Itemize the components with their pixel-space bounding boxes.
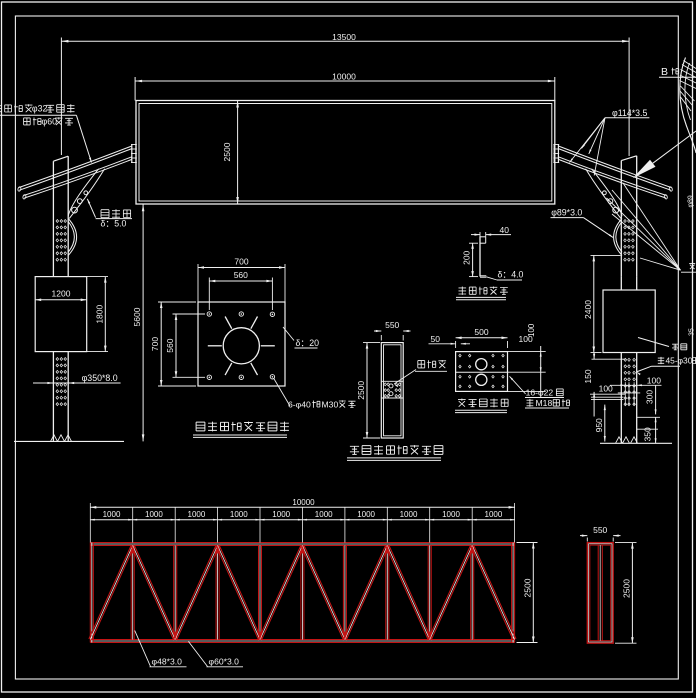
svg-text:δ：20: δ：20: [296, 338, 320, 348]
svg-text:1000: 1000: [103, 510, 121, 519]
svg-text:45-φ30: 45-φ30: [666, 356, 693, 366]
svg-text:φ114*3.5: φ114*3.5: [612, 108, 647, 118]
svg-text:1200: 1200: [52, 289, 71, 299]
svg-text:2500: 2500: [621, 579, 631, 598]
svg-text:350: 350: [643, 427, 653, 441]
svg-text:φ60*3.0: φ60*3.0: [209, 657, 240, 667]
svg-text:35: 35: [689, 328, 696, 336]
svg-text:10000: 10000: [332, 72, 356, 82]
svg-text:φ350*8.0: φ350*8.0: [82, 373, 118, 383]
svg-text:δ：4.0: δ：4.0: [498, 270, 524, 280]
svg-text:100: 100: [527, 323, 536, 337]
svg-text:950: 950: [594, 418, 604, 432]
svg-text:16-φ22: 16-φ22: [526, 388, 554, 398]
svg-text:40: 40: [500, 225, 510, 235]
svg-text:560: 560: [165, 338, 175, 352]
svg-text:1000: 1000: [230, 510, 248, 519]
svg-text:1000: 1000: [400, 510, 418, 519]
svg-text:2500: 2500: [222, 142, 232, 161]
svg-text:150: 150: [583, 369, 593, 383]
svg-text:2400: 2400: [583, 300, 593, 319]
svg-text:5600: 5600: [132, 307, 142, 326]
svg-text:2500: 2500: [356, 381, 366, 400]
svg-text:560: 560: [234, 270, 248, 280]
svg-text:6-φ40: 6-φ40: [288, 400, 311, 410]
svg-text:700: 700: [150, 337, 160, 351]
svg-text:φ48*3.0: φ48*3.0: [152, 657, 183, 667]
svg-text:550: 550: [593, 525, 607, 535]
svg-text:200: 200: [462, 250, 472, 264]
svg-text:1000: 1000: [272, 510, 290, 519]
svg-text:100: 100: [647, 375, 661, 385]
svg-text:φ32: φ32: [32, 104, 48, 114]
svg-text:2500: 2500: [522, 578, 532, 597]
svg-text:δ：5.0: δ：5.0: [101, 219, 127, 229]
svg-text:M18: M18: [536, 398, 553, 408]
svg-text:1000: 1000: [357, 510, 375, 519]
svg-text:1000: 1000: [145, 510, 163, 519]
svg-text:B: B: [661, 66, 668, 78]
svg-text:500: 500: [474, 327, 488, 337]
svg-text:1000: 1000: [485, 510, 503, 519]
svg-text:1800: 1800: [94, 304, 104, 323]
svg-text:1000: 1000: [315, 510, 333, 519]
svg-text:300: 300: [645, 390, 655, 404]
svg-text:φ60: φ60: [42, 116, 58, 126]
svg-text:13500: 13500: [332, 32, 356, 42]
svg-text:1000: 1000: [188, 510, 206, 519]
svg-text:φ89: φ89: [688, 195, 695, 207]
svg-text:M30: M30: [322, 400, 339, 410]
svg-text:50: 50: [431, 334, 441, 344]
svg-text:700: 700: [234, 257, 248, 267]
svg-text:φ89*3.0: φ89*3.0: [551, 207, 582, 217]
svg-text:1000: 1000: [442, 510, 460, 519]
svg-text:10000: 10000: [292, 498, 315, 507]
svg-text:550: 550: [385, 320, 399, 330]
